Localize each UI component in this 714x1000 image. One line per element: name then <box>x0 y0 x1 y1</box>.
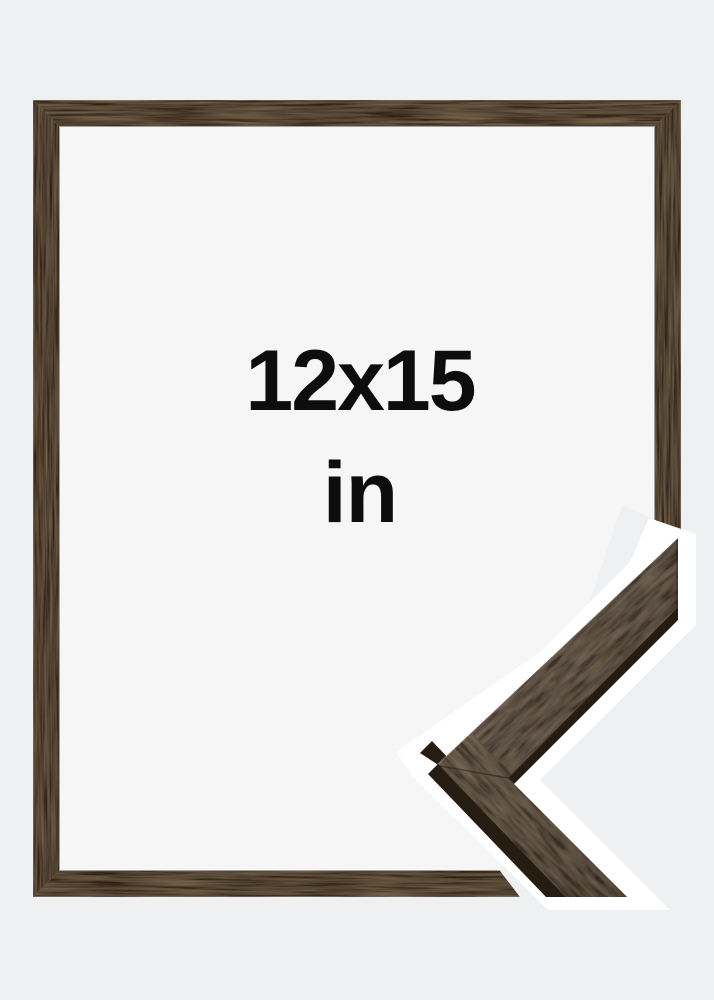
frame-top-bar-grain <box>33 100 681 126</box>
size-label: 12x15 <box>245 333 474 429</box>
product-image: 12x15 in <box>0 0 714 1000</box>
frame-left-bar-grain <box>33 100 59 897</box>
unit-label: in <box>323 445 397 541</box>
